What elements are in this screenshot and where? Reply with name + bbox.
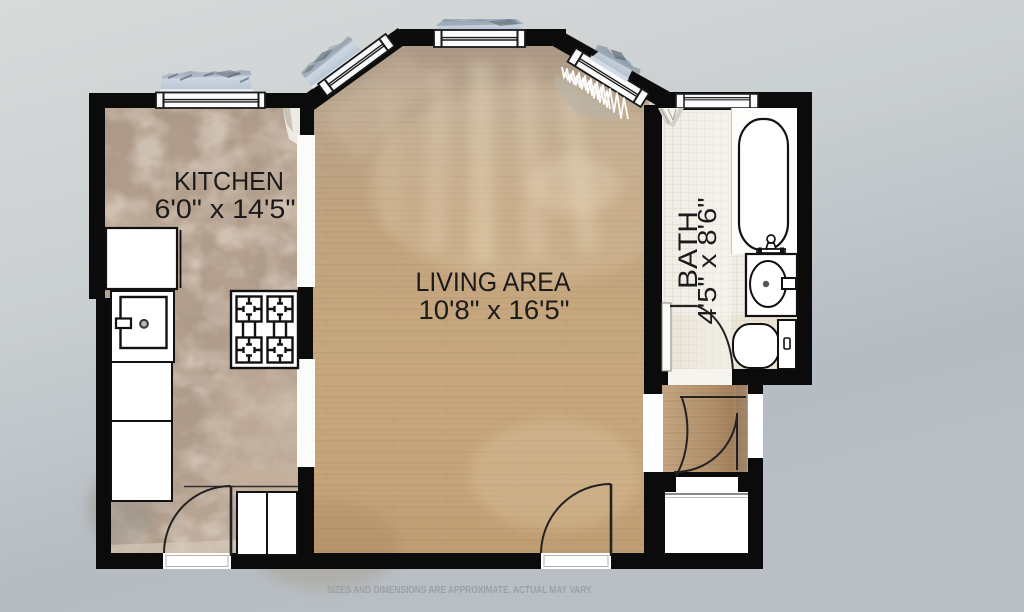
svg-text:SIZES AND DIMENSIONS ARE APPRO: SIZES AND DIMENSIONS ARE APPROXIMATE, AC… bbox=[327, 584, 593, 596]
svg-text:KITCHEN: KITCHEN bbox=[174, 166, 284, 196]
svg-text:LIVING AREA: LIVING AREA bbox=[416, 267, 571, 297]
svg-text:4'5" x 8'6": 4'5" x 8'6" bbox=[692, 198, 722, 325]
svg-text:10'8" x 16'5": 10'8" x 16'5" bbox=[419, 295, 570, 325]
svg-text:6'0" x 14'5": 6'0" x 14'5" bbox=[155, 194, 296, 224]
